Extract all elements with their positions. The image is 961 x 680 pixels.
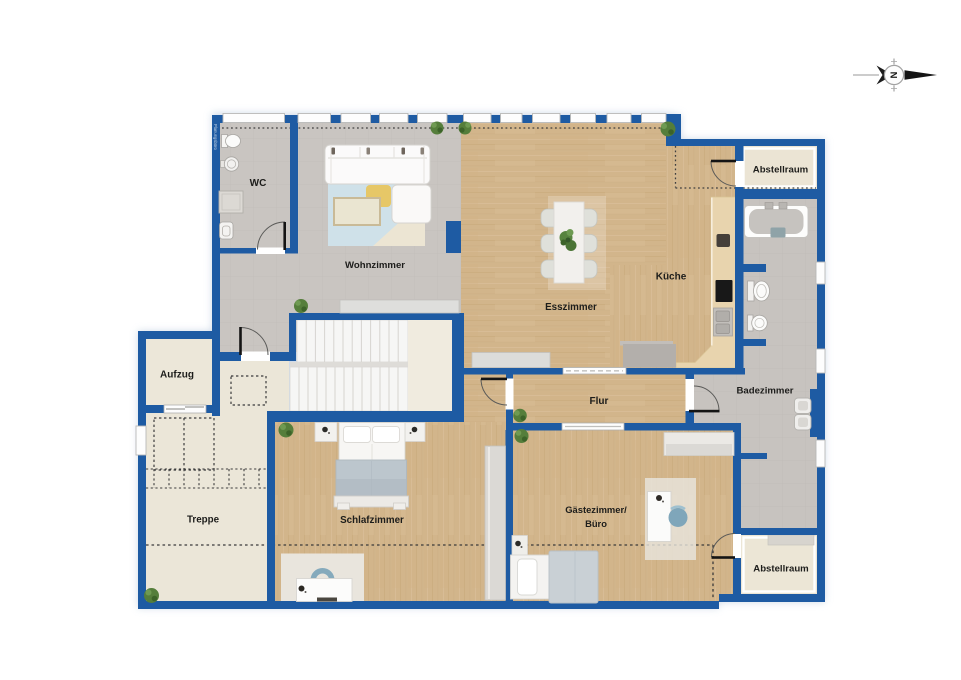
svg-text:Flur: Flur bbox=[590, 396, 609, 407]
svg-text:Büro: Büro bbox=[585, 518, 607, 529]
svg-text:Planungsbüro: Planungsbüro bbox=[213, 124, 218, 151]
svg-text:Gästezimmer/: Gästezimmer/ bbox=[565, 504, 627, 515]
svg-text:Abstellraum: Abstellraum bbox=[753, 165, 808, 176]
svg-text:Esszimmer: Esszimmer bbox=[545, 302, 597, 313]
svg-text:WC: WC bbox=[250, 178, 267, 189]
svg-text:Wohnzimmer: Wohnzimmer bbox=[345, 260, 405, 271]
svg-text:Badezimmer: Badezimmer bbox=[736, 386, 793, 397]
svg-text:Treppe: Treppe bbox=[187, 515, 220, 526]
svg-text:Küche: Küche bbox=[656, 272, 687, 283]
svg-text:N: N bbox=[888, 72, 899, 79]
svg-text:Abstellraum: Abstellraum bbox=[753, 564, 808, 575]
svg-text:Schlafzimmer: Schlafzimmer bbox=[340, 515, 404, 526]
svg-text:Aufzug: Aufzug bbox=[160, 370, 194, 381]
